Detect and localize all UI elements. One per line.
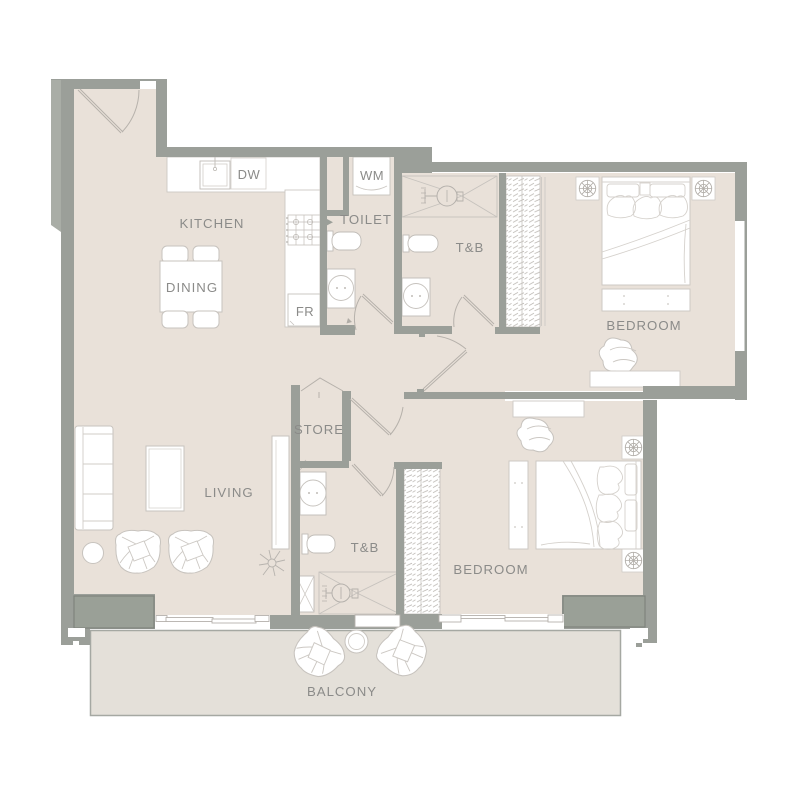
- svg-text:T&B: T&B: [351, 540, 380, 555]
- svg-text:T&B: T&B: [456, 240, 485, 255]
- svg-text:LIVING: LIVING: [204, 485, 253, 500]
- svg-text:WM: WM: [360, 168, 384, 183]
- svg-text:DINING: DINING: [166, 280, 218, 295]
- svg-text:STORE: STORE: [294, 422, 344, 437]
- svg-text:BEDROOM: BEDROOM: [606, 318, 681, 333]
- svg-text:BEDROOM: BEDROOM: [453, 562, 528, 577]
- svg-text:BALCONY: BALCONY: [307, 684, 377, 699]
- svg-text:FR: FR: [296, 304, 314, 319]
- svg-text:KITCHEN: KITCHEN: [180, 216, 245, 231]
- svg-text:TOILET: TOILET: [340, 212, 392, 227]
- svg-text:DW: DW: [238, 167, 261, 182]
